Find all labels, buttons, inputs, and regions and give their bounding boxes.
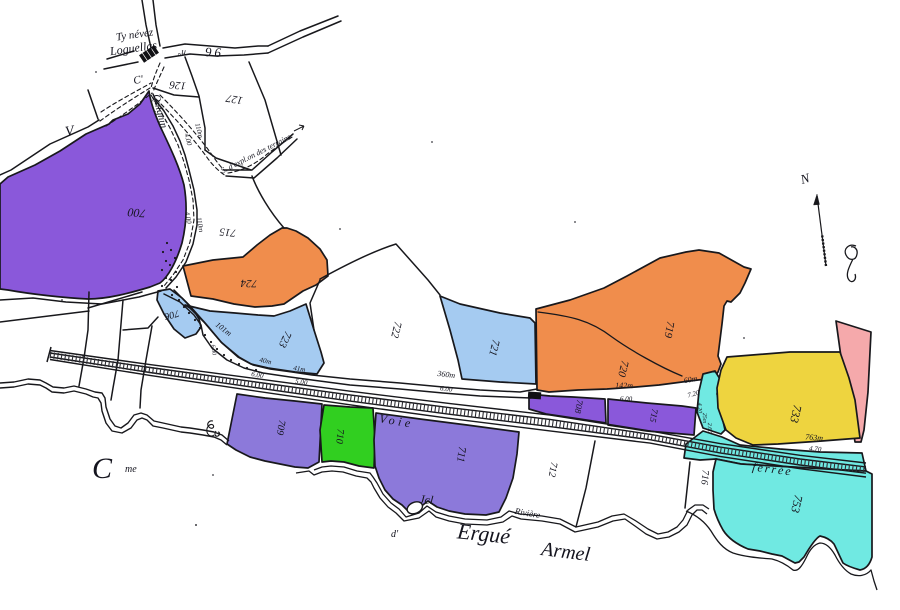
svg-text:711: 711 xyxy=(454,446,468,463)
svg-text:me: me xyxy=(125,464,137,475)
svg-text:6.00: 6.00 xyxy=(440,384,454,393)
svg-text:716: 716 xyxy=(698,469,710,485)
svg-text:715: 715 xyxy=(218,225,236,238)
svg-text:d': d' xyxy=(391,529,399,540)
svg-text:126: 126 xyxy=(168,78,186,91)
svg-text:C: C xyxy=(92,452,113,485)
svg-text:Jcl: Jcl xyxy=(419,492,435,507)
svg-text:4.70: 4.70 xyxy=(809,444,823,453)
svg-text:96: 96 xyxy=(202,45,222,61)
svg-text:724: 724 xyxy=(240,277,257,290)
svg-text:700: 700 xyxy=(127,205,146,221)
svg-text:n°: n° xyxy=(177,48,186,58)
svg-text:763m: 763m xyxy=(805,432,824,442)
svg-text:142m: 142m xyxy=(615,381,633,390)
svg-text:4.20: 4.20 xyxy=(696,403,703,414)
svg-text:6.00: 6.00 xyxy=(210,344,217,355)
svg-text:2.60: 2.60 xyxy=(706,423,712,434)
svg-text:710: 710 xyxy=(333,428,345,444)
svg-text:6.00: 6.00 xyxy=(620,395,633,403)
